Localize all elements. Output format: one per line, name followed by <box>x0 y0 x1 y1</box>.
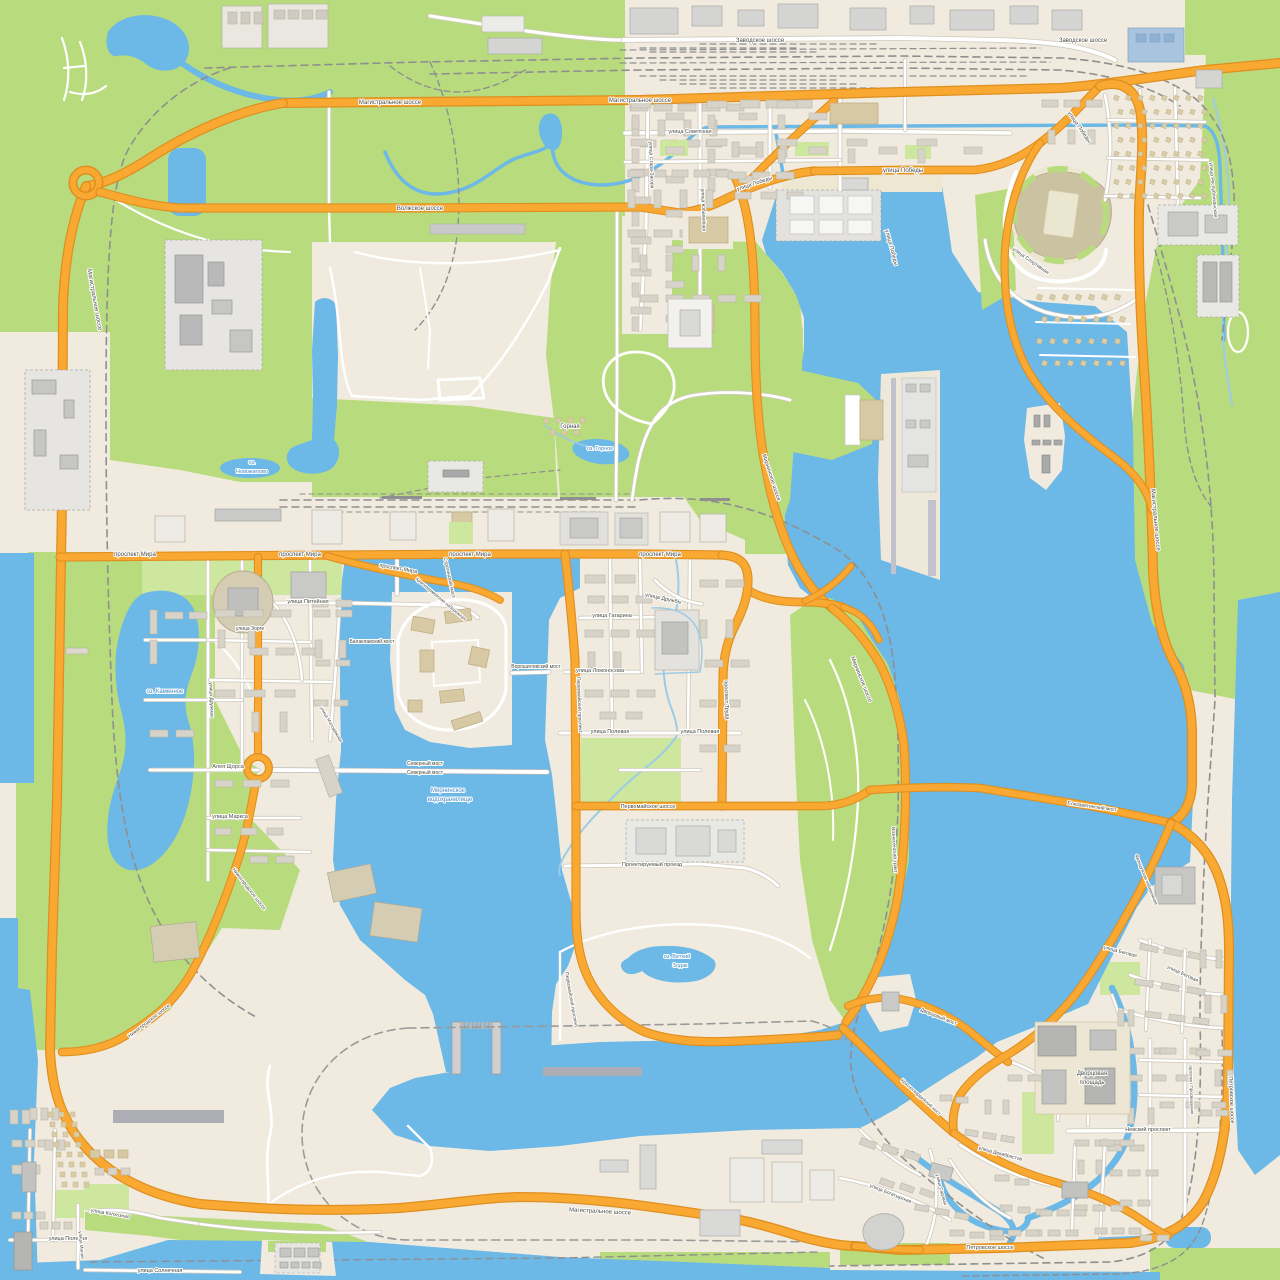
svg-text:Дворцовая: Дворцовая <box>1077 1071 1107 1077</box>
svg-text:оз. Каменное: оз. Каменное <box>147 689 185 695</box>
svg-text:Заводское шоссе: Заводское шоссе <box>736 38 785 44</box>
svg-text:Северный мост: Северный мост <box>407 769 444 776</box>
svg-text:улица Солнечная: улица Солнечная <box>138 1268 183 1274</box>
svg-text:улица Маркса: улица Маркса <box>212 814 249 820</box>
svg-text:Балаклавский мост: Балаклавский мост <box>350 638 396 645</box>
svg-text:Ворошиловский мост: Ворошиловский мост <box>511 663 561 670</box>
svg-text:улица Дружная: улица Дружная <box>207 682 214 718</box>
svg-text:оз. Ветхий: оз. Ветхий <box>664 953 691 960</box>
svg-text:Алея Щорса: Алея Щорса <box>212 764 244 770</box>
svg-text:проспект Мира: проспект Мира <box>279 552 321 558</box>
svg-text:Мирнинское: Мирнинское <box>431 788 466 794</box>
svg-text:улица Полевая: улица Полевая <box>681 729 720 735</box>
svg-text:Первомайское шоссе: Первомайское шоссе <box>621 803 676 810</box>
svg-text:оз. Горное: оз. Горное <box>587 446 613 452</box>
svg-text:площадь: площадь <box>1079 1080 1104 1086</box>
svg-text:улица Советская: улица Советская <box>668 129 711 135</box>
svg-text:Новожилово: Новожилово <box>236 469 268 475</box>
svg-text:улица Питейная: улица Питейная <box>287 598 328 605</box>
svg-text:водохранилище: водохранилище <box>428 797 473 803</box>
svg-text:Магистральное шоссе: Магистральное шоссе <box>359 100 422 106</box>
svg-text:Невский проспект: Невский проспект <box>1125 1126 1171 1133</box>
svg-text:улица Зорге: улица Зорге <box>236 626 264 632</box>
svg-text:улица Полевая: улица Полевая <box>591 729 630 735</box>
svg-text:Петровское шоссе: Петровское шоссе <box>966 1245 1013 1251</box>
svg-text:Заводское шоссе: Заводское шоссе <box>1059 38 1108 44</box>
svg-text:Магистральное шоссе: Магистральное шоссе <box>609 98 672 104</box>
svg-text:улица Ломоносова: улица Ломоносова <box>576 668 625 674</box>
svg-text:проспект Мира: проспект Мира <box>114 552 156 558</box>
svg-text:Северный мост: Северный мост <box>407 760 444 767</box>
svg-text:Горная: Горная <box>560 424 579 430</box>
svg-text:Проектируемый проезд: Проектируемый проезд <box>622 861 683 868</box>
svg-text:улица Гагарина: улица Гагарина <box>592 613 632 619</box>
svg-text:Зодак: Зодак <box>673 963 689 969</box>
svg-text:проспект Мира: проспект Мира <box>639 552 681 558</box>
svg-text:оз.: оз. <box>248 460 256 466</box>
svg-text:проспект Мира: проспект Мира <box>449 552 491 558</box>
svg-text:Волжское шоссе: Волжское шоссе <box>397 206 444 212</box>
svg-text:улица Победы: улица Победы <box>883 168 923 174</box>
